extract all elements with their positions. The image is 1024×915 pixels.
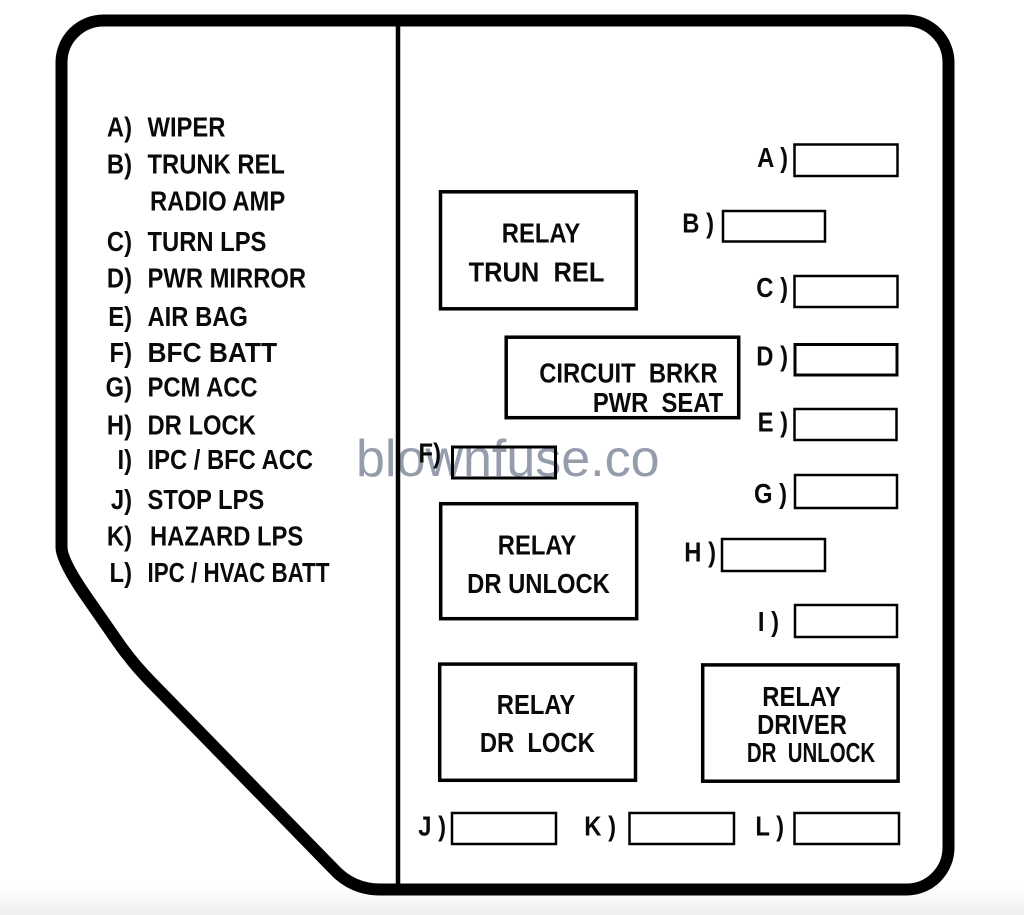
svg-text:K ): K ) [584, 810, 616, 842]
svg-text:TURN LPS: TURN LPS [148, 225, 267, 257]
svg-text:C ): C ) [756, 271, 788, 303]
svg-text:STOP LPS: STOP LPS [148, 483, 265, 515]
svg-text:DR LOCK: DR LOCK [480, 726, 595, 758]
svg-text:E): E) [108, 300, 132, 332]
svg-text:A ): A ) [757, 141, 788, 173]
svg-text:D): D) [107, 262, 132, 294]
svg-text:BFC BATT: BFC BATT [148, 336, 278, 368]
svg-text:TRUNK REL: TRUNK REL [148, 148, 286, 180]
svg-text:DRIVER: DRIVER [757, 708, 847, 740]
svg-text:I): I) [117, 443, 132, 475]
svg-text:D ): D ) [756, 340, 788, 372]
svg-text:F): F) [419, 437, 441, 469]
svg-text:B ): B ) [682, 207, 714, 239]
svg-text:DR LOCK: DR LOCK [148, 408, 257, 440]
svg-text:IPC / BFC ACC: IPC / BFC ACC [148, 443, 314, 475]
svg-text:G ): G ) [754, 477, 787, 509]
svg-text:RELAY: RELAY [498, 529, 576, 561]
svg-text:I ): I ) [758, 605, 779, 637]
svg-text:L): L) [110, 556, 132, 588]
svg-text:CIRCUIT BRKR: CIRCUIT BRKR [539, 357, 718, 389]
svg-text:J ): J ) [418, 810, 446, 842]
svg-text:HAZARD LPS: HAZARD LPS [150, 520, 303, 552]
svg-text:RELAY: RELAY [497, 688, 575, 720]
svg-text:C): C) [107, 225, 132, 257]
svg-text:F): F) [110, 336, 132, 368]
svg-text:K): K) [107, 520, 132, 552]
svg-text:G): G) [106, 371, 132, 403]
svg-text:B): B) [107, 148, 132, 180]
svg-text:WIPER: WIPER [148, 111, 226, 143]
svg-text:TRUN REL: TRUN REL [469, 256, 605, 287]
svg-text:RADIO AMP: RADIO AMP [150, 184, 285, 216]
svg-text:PWR MIRROR: PWR MIRROR [148, 262, 307, 294]
svg-text:DR UNLOCK: DR UNLOCK [747, 738, 875, 769]
svg-text:H): H) [107, 408, 132, 440]
svg-text:J): J) [111, 483, 132, 515]
svg-text:PCM ACC: PCM ACC [148, 371, 258, 403]
svg-text:E ): E ) [758, 406, 788, 438]
svg-text:IPC / HVAC BATT: IPC / HVAC BATT [148, 558, 330, 589]
svg-text:DR UNLOCK: DR UNLOCK [467, 567, 610, 599]
svg-text:AIR BAG: AIR BAG [148, 300, 248, 332]
svg-text:RELAY: RELAY [502, 217, 580, 249]
svg-text:PWR SEAT: PWR SEAT [593, 386, 724, 418]
svg-text:L ): L ) [755, 810, 784, 842]
svg-text:H ): H ) [684, 536, 716, 568]
svg-text:A): A) [107, 111, 132, 143]
